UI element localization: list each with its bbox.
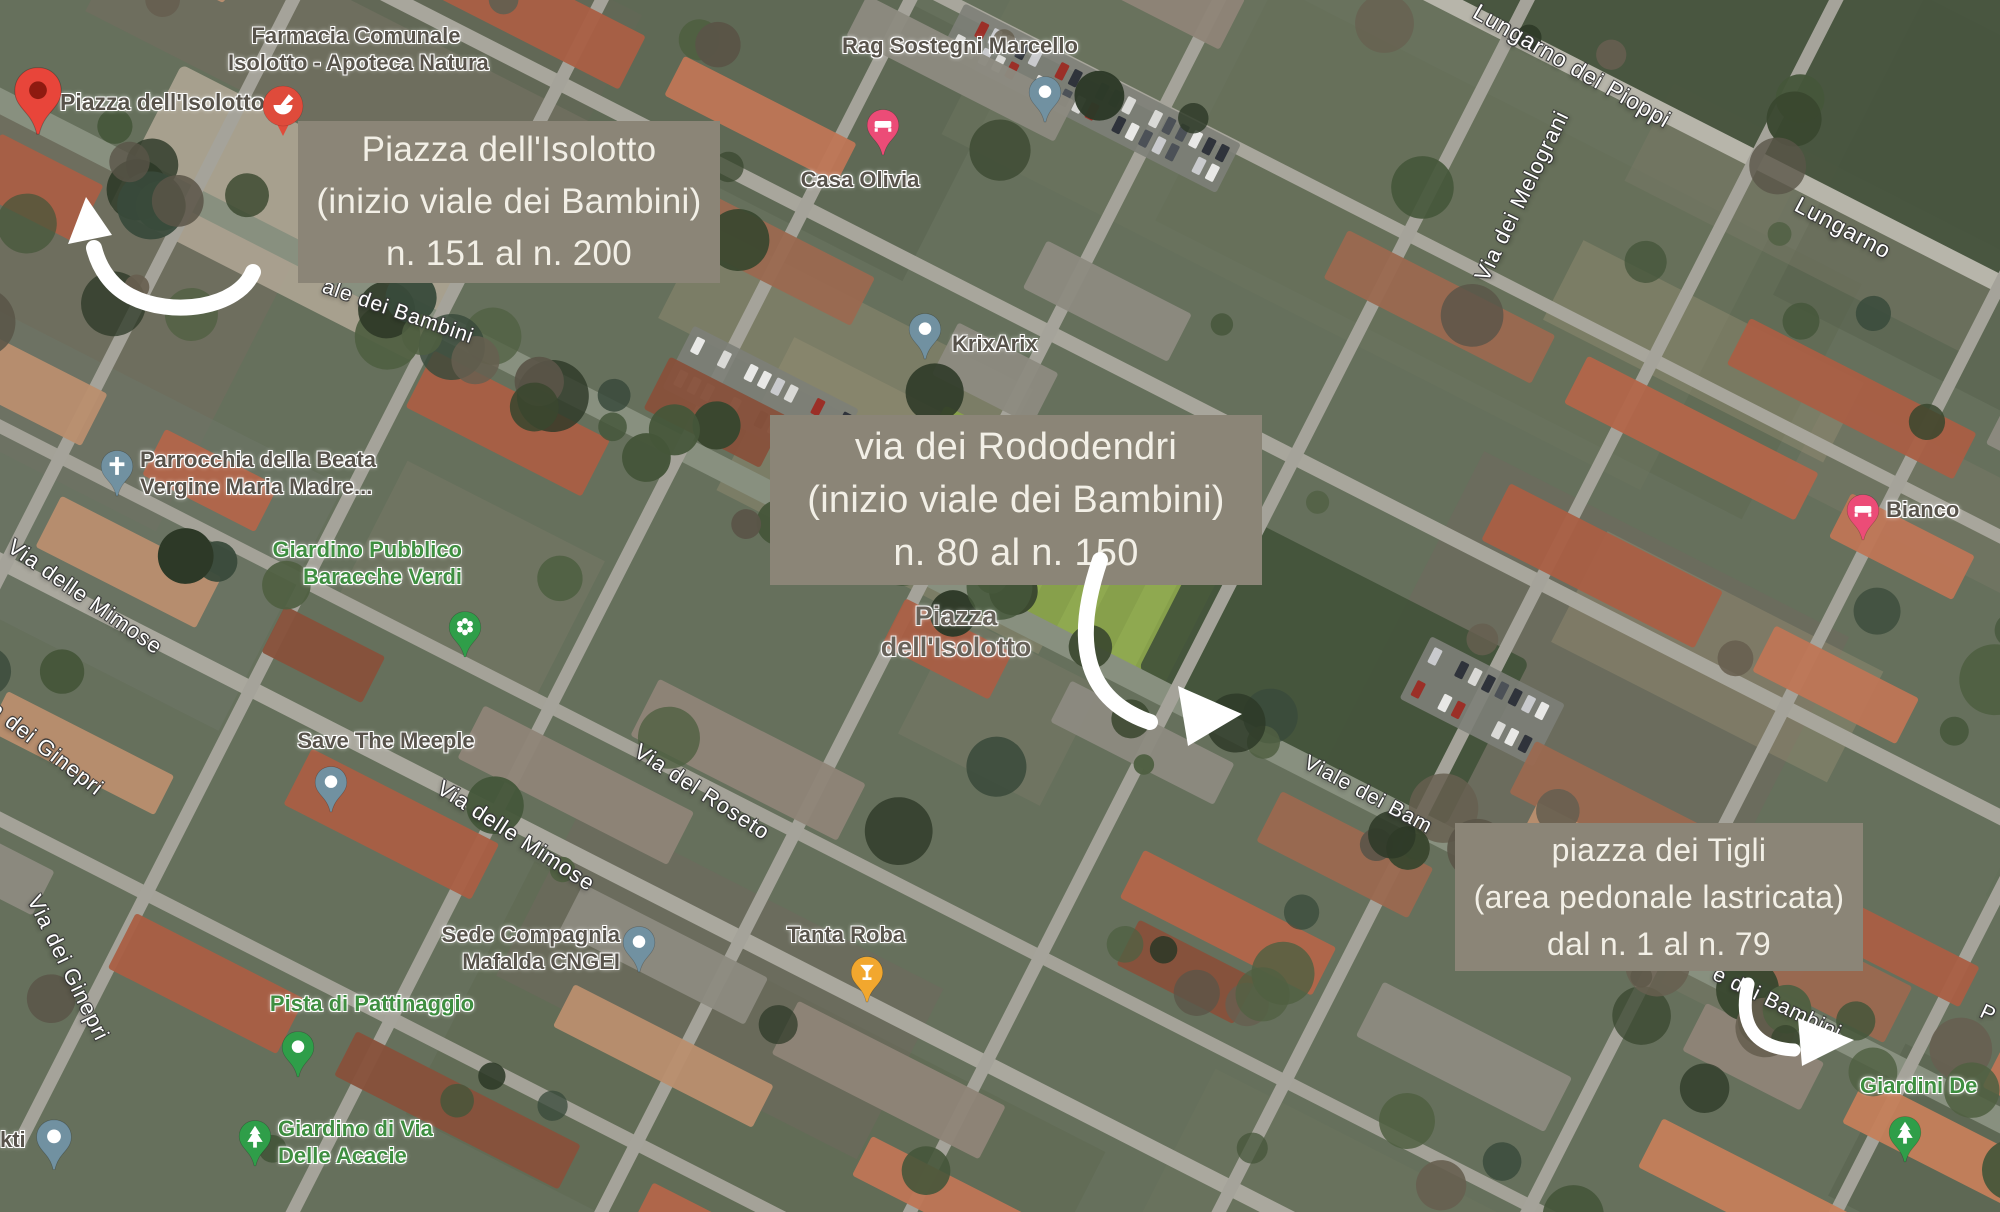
annotation-line: (area pedonale lastricata) [1474, 874, 1845, 921]
poi-label-save-the-meeple[interactable]: Save The Meeple [286, 727, 486, 754]
poi-label-sede-cngei[interactable]: Sede Compagnia Mafalda CNGEI [420, 921, 620, 975]
poi-label-casa-olivia[interactable]: Casa Olivia [770, 166, 950, 193]
park-tree-pin-icon[interactable] [237, 1119, 273, 1169]
area-label-line: dell'Isolotto [856, 632, 1056, 663]
poi-label-giardino-acacie[interactable]: Giardino di Via Delle Acacie [278, 1115, 433, 1169]
food-drink-pin-icon[interactable] [849, 955, 885, 1005]
park-flower-pin-icon[interactable] [447, 610, 483, 660]
business-pin-icon[interactable] [313, 765, 349, 815]
business-pin-icon[interactable] [1027, 75, 1063, 125]
business-pin-icon[interactable] [621, 925, 657, 975]
hotel-pin-icon[interactable] [865, 108, 901, 158]
poi-label-piazza-isolotto[interactable]: Piazza dell'Isolotto [60, 89, 265, 116]
poi-label-line: Delle Acacie [278, 1142, 433, 1169]
area-label-line: Piazza [856, 601, 1056, 632]
annotation-line: (inizio viale dei Bambini) [316, 176, 701, 228]
annotation-line: (inizio viale dei Bambini) [807, 474, 1225, 527]
park-pin-icon[interactable] [280, 1030, 316, 1080]
poi-label-line: Mafalda CNGEI [420, 948, 620, 975]
poi-label-line: Baracche Verdi [270, 563, 462, 590]
annotation-line: Piazza dell'Isolotto [362, 124, 657, 176]
business-pin-icon[interactable] [907, 312, 943, 362]
poi-label-tanta-roba[interactable]: Tanta Roba [756, 921, 936, 948]
poi-label-rag-sostegni[interactable]: Rag Sostegni Marcello [810, 32, 1110, 59]
poi-label-pista-pattinaggio[interactable]: Pista di Pattinaggio [252, 990, 492, 1017]
map-screenshot: ale dei Bambini Via delle Mimose Via dei… [0, 0, 2000, 1212]
poi-label-line: Parrocchia della Beata [140, 446, 376, 473]
poi-label-bianco[interactable]: Bianco [1886, 496, 1959, 523]
poi-label-giardini-de[interactable]: Giardini De [1860, 1072, 1977, 1099]
poi-label-line: Giardino di Via [278, 1115, 433, 1142]
poi-label-farmacia[interactable]: Farmacia Comunale Isolotto - Apoteca Nat… [228, 22, 484, 76]
poi-label-parrocchia[interactable]: Parrocchia della Beata Vergine Maria Mad… [140, 446, 376, 500]
poi-label-krixarix[interactable]: KrixArix [952, 330, 1038, 357]
annotation-box-piazza-isolotto: Piazza dell'Isolotto (inizio viale dei B… [298, 121, 720, 283]
annotation-box-via-rododendri: via dei Rododendri (inizio viale dei Bam… [770, 415, 1262, 585]
red-place-marker-icon[interactable] [12, 64, 64, 140]
annotation-line: piazza dei Tigli [1552, 827, 1767, 874]
area-label-piazza-isolotto[interactable]: Piazza dell'Isolotto [856, 601, 1056, 663]
poi-label-line: Sede Compagnia [420, 921, 620, 948]
annotation-box-piazza-tigli: piazza dei Tigli (area pedonale lastrica… [1455, 823, 1863, 971]
poi-label-line: Isolotto - Apoteca Natura [228, 49, 484, 76]
church-pin-icon[interactable] [99, 449, 135, 499]
poi-label-baracche-verdi[interactable]: Giardino Pubblico Baracche Verdi [270, 536, 462, 590]
poi-label-line: Giardino Pubblico [270, 536, 462, 563]
poi-label-line: Vergine Maria Madre... [140, 473, 376, 500]
annotation-line: via dei Rododendri [855, 421, 1177, 474]
hotel-pin-icon[interactable] [1845, 493, 1881, 543]
annotation-line: n. 151 al n. 200 [386, 228, 632, 280]
annotation-line: dal n. 1 al n. 79 [1547, 921, 1771, 968]
poi-label-kti[interactable]: kti [0, 1126, 26, 1153]
annotation-line: n. 80 al n. 150 [893, 527, 1138, 580]
poi-label-line: Farmacia Comunale [228, 22, 484, 49]
business-pin-icon[interactable] [34, 1118, 74, 1173]
park-tree-pin-icon[interactable] [1887, 1115, 1923, 1165]
